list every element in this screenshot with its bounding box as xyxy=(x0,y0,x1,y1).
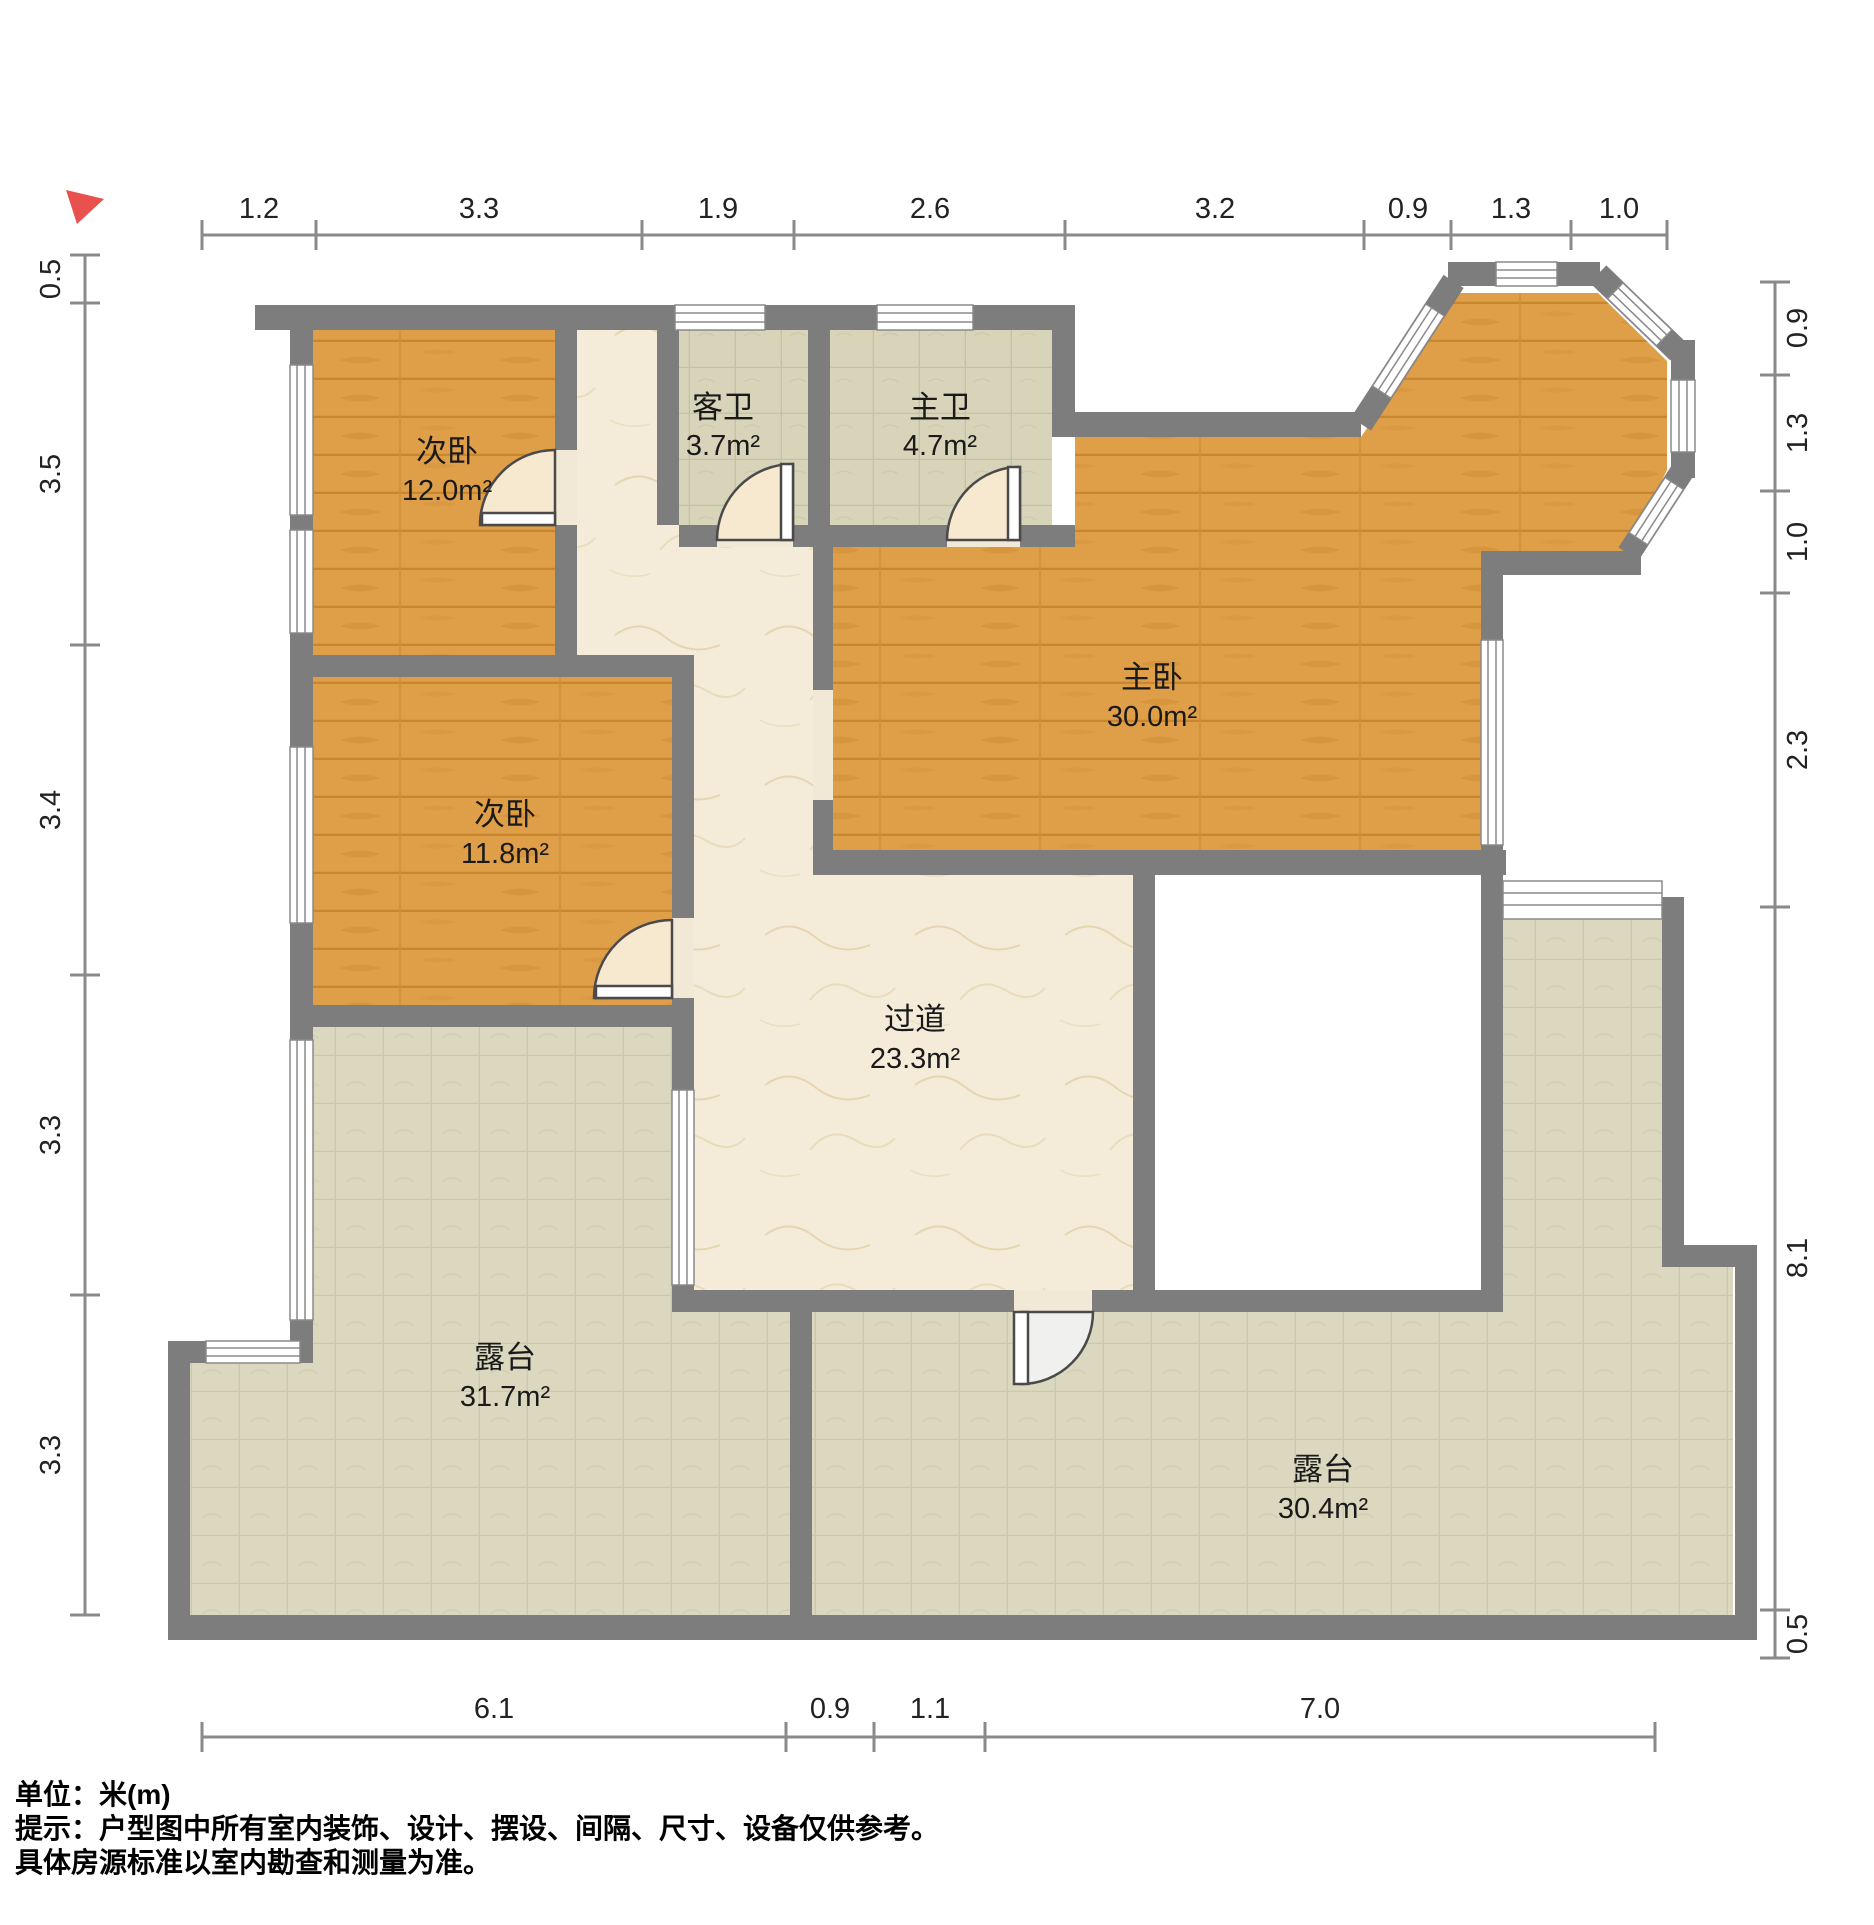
dim-label: 1.2 xyxy=(239,193,279,225)
window-corridor-terrace xyxy=(672,1090,694,1285)
dim-label: 1.0 xyxy=(1599,193,1639,225)
floor-undefined-room xyxy=(1155,875,1481,1290)
footer-unit-line: 单位：米(m) xyxy=(15,1778,171,1810)
dim-label: 8.1 xyxy=(1782,1238,1814,1278)
dim-label: 3.5 xyxy=(35,454,67,494)
window-bay-right xyxy=(1671,380,1695,452)
window-top-corridor xyxy=(675,305,765,330)
room-name-label: 过道 xyxy=(884,1002,946,1037)
dimension-chain-right xyxy=(1760,282,1790,1658)
room-area-label: 30.4m² xyxy=(1278,1493,1369,1525)
dim-label: 3.3 xyxy=(35,1115,67,1155)
window-bed1-left xyxy=(290,365,313,515)
window-bay-top xyxy=(1496,262,1557,286)
footer-disclaimer-line-1: 提示：户型图中所有室内装饰、设计、摆设、间隔、尺寸、设备仅供参考。 xyxy=(15,1812,939,1844)
floor-plan: 次卧 12.0m² 次卧 11.8m² 客卫 3.7m² 主卫 4.7m² 主卧… xyxy=(0,0,1874,1920)
footer-notes: 单位：米(m) 提示：户型图中所有室内装饰、设计、摆设、间隔、尺寸、设备仅供参考… xyxy=(15,1778,939,1878)
window-top-master-bath xyxy=(877,305,973,330)
window-terrace-step xyxy=(206,1341,300,1363)
dim-label: 3.2 xyxy=(1195,193,1235,225)
dim-label: 0.9 xyxy=(810,1693,850,1725)
room-area-label: 4.7m² xyxy=(903,430,977,462)
room-name-label: 主卫 xyxy=(909,390,971,425)
window-terrace-right-band xyxy=(1503,881,1662,919)
room-name-label: 客卫 xyxy=(692,390,754,425)
dim-label: 0.5 xyxy=(1782,1614,1814,1654)
dim-label: 3.3 xyxy=(459,193,499,225)
room-area-label: 11.8m² xyxy=(461,838,549,870)
dim-label: 0.9 xyxy=(1782,308,1814,348)
window-master-right xyxy=(1481,640,1503,845)
dim-label: 1.0 xyxy=(1782,522,1814,562)
dim-label: 1.9 xyxy=(698,193,738,225)
dim-label: 2.3 xyxy=(1782,730,1814,770)
north-arrow-icon xyxy=(66,190,104,224)
room-area-label: 23.3m² xyxy=(870,1043,961,1075)
dim-label: 7.0 xyxy=(1300,1693,1340,1725)
room-name-label: 主卧 xyxy=(1121,660,1183,695)
room-area-label: 3.7m² xyxy=(686,430,760,462)
window-terrace-left xyxy=(290,1040,313,1320)
room-name-label: 次卧 xyxy=(474,797,536,832)
dimension-chain-left xyxy=(70,255,100,1615)
dim-label: 3.3 xyxy=(35,1435,67,1475)
room-area-label: 31.7m² xyxy=(460,1381,551,1413)
dim-label: 3.4 xyxy=(35,790,67,830)
room-name-label: 露台 xyxy=(1292,1452,1354,1487)
dim-label: 2.6 xyxy=(910,193,950,225)
window-bed2-left xyxy=(290,747,313,923)
window-bed1-left-2 xyxy=(290,530,313,633)
dim-label: 1.3 xyxy=(1491,193,1531,225)
room-area-label: 30.0m² xyxy=(1107,701,1198,733)
dim-label: 0.5 xyxy=(35,259,67,299)
room-area-label: 12.0m² xyxy=(402,475,493,507)
room-name-label: 露台 xyxy=(474,1340,536,1375)
dim-label: 0.9 xyxy=(1388,193,1428,225)
room-name-label: 次卧 xyxy=(416,434,478,469)
dimension-chain-bottom xyxy=(202,1722,1655,1752)
dim-label: 1.3 xyxy=(1782,413,1814,453)
dim-label: 1.1 xyxy=(910,1693,950,1725)
dim-label: 6.1 xyxy=(474,1693,514,1725)
footer-disclaimer-line-2: 具体房源标准以室内勘查和测量为准。 xyxy=(15,1846,491,1878)
